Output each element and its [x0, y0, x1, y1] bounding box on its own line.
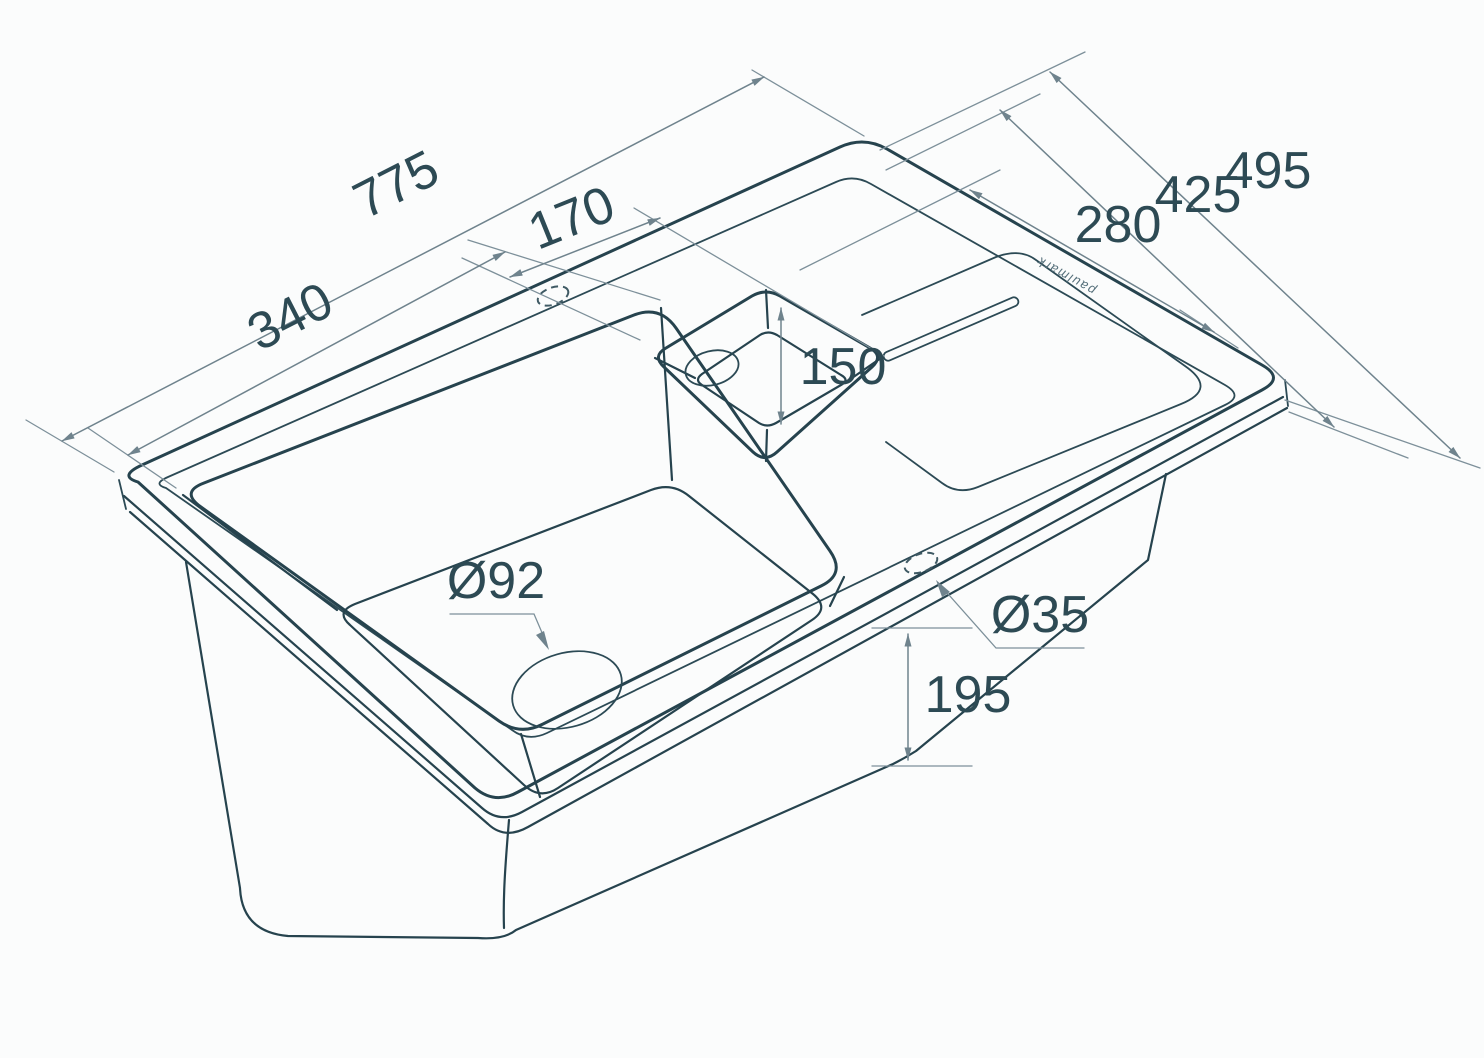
dim-label-195: 195 [925, 666, 1012, 724]
dim-label-150: 150 [800, 338, 887, 396]
dim-label-170: 170 [521, 175, 623, 261]
callout-drain-92: Ø92 [447, 552, 549, 650]
dim-label-775: 775 [344, 139, 448, 230]
dim-195: 195 [872, 628, 1011, 766]
dim-775: 775 [62, 77, 764, 441]
brand-text: paulmark [1034, 254, 1099, 299]
faucet-hole-dashed-right [902, 549, 940, 578]
drainboard-outline [862, 253, 1201, 490]
dim-495: 495 [1050, 72, 1460, 458]
dim-label-d92: Ø92 [447, 552, 545, 610]
dim-label-d35: Ø35 [991, 586, 1089, 644]
dim-label-280: 280 [1075, 196, 1162, 254]
drainboard-groove [882, 296, 1020, 362]
dim-label-425: 425 [1155, 166, 1242, 224]
drawing-svg: paulmark 775 340 170 495 425 280 [0, 0, 1484, 1058]
inner-rim-edge [159, 178, 1234, 736]
main-bowl-floor [344, 487, 822, 793]
drainboard [862, 253, 1201, 490]
sink-technical-drawing: paulmark 775 340 170 495 425 280 [0, 0, 1484, 1058]
